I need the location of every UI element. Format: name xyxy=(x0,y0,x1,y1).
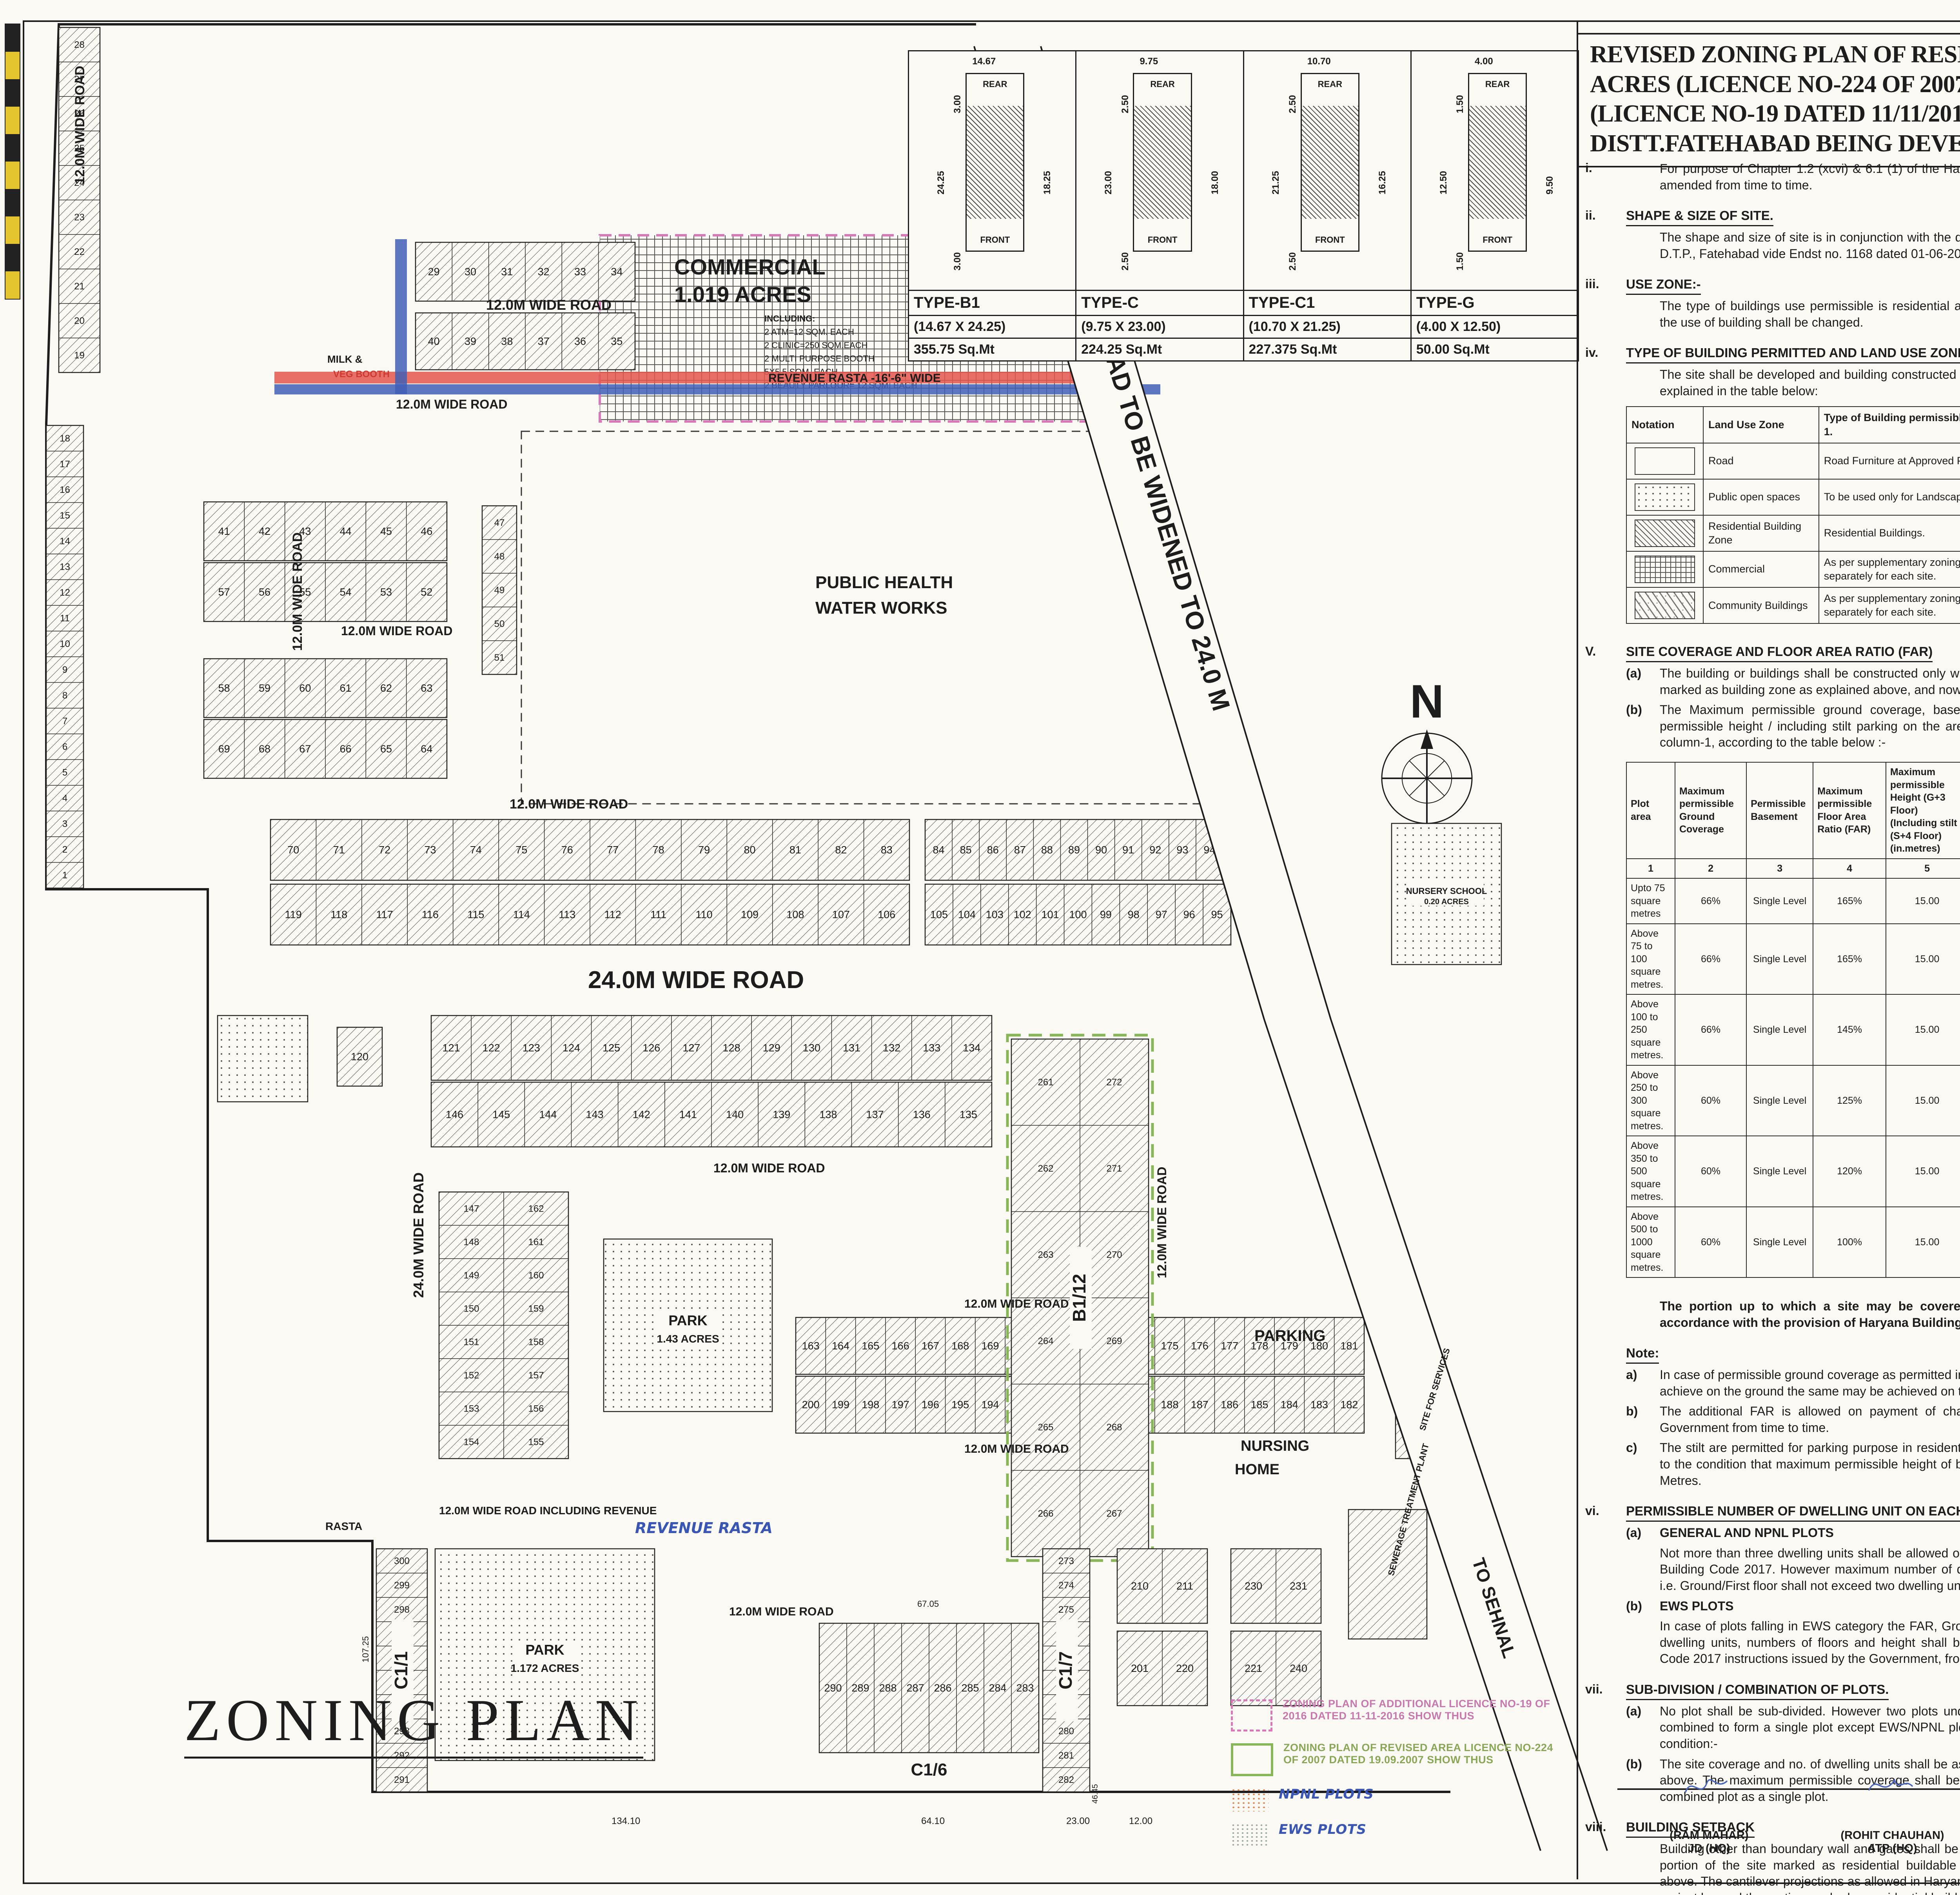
plot-number: 135 xyxy=(960,1109,977,1121)
plot-type-dims: (10.70 X 21.25) xyxy=(1244,315,1410,338)
plot-number: 50 xyxy=(494,619,505,629)
plot-number: 286 xyxy=(934,1682,951,1694)
section-paragraph: For purpose of Chapter 1.2 (xcvi) & 6.1 … xyxy=(1626,161,1960,193)
plot-number: 108 xyxy=(786,909,804,921)
commercial-including: 2 MULTI PURPOSE BOOTH xyxy=(764,354,875,363)
regulation-section: The portion up to which a site may be co… xyxy=(1585,1297,1960,1335)
compass-ray xyxy=(1427,778,1445,796)
plot-number: 186 xyxy=(1221,1399,1238,1411)
plot-number: 66 xyxy=(340,743,352,755)
plot-number: 184 xyxy=(1281,1399,1298,1411)
plot-number: 132 xyxy=(883,1042,900,1054)
plot-number: 57 xyxy=(218,586,230,598)
plot-number: 122 xyxy=(483,1042,500,1054)
plot-number: 127 xyxy=(682,1042,700,1054)
compass-ray xyxy=(1409,761,1427,778)
area-label: 0.20 ACRES xyxy=(1424,898,1469,906)
section-paragraph: (a)No plot shall be sub-divided. However… xyxy=(1626,1703,1960,1752)
map-label: MILK & xyxy=(327,353,363,365)
plot-type-name: TYPE-C1 xyxy=(1244,290,1410,315)
plot-number: 7 xyxy=(62,716,67,727)
section-paragraph: (b)EWS PLOTS xyxy=(1626,1598,1960,1615)
zoning-plan-sheet: COMMERCIAL1.019 ACRESINCLUDING:2 ATM=12 … xyxy=(0,0,1960,1895)
legend-item: ZONING PLAN OF REVISED AREA LICENCE NO-2… xyxy=(1231,1742,1568,1776)
plot-number: 89 xyxy=(1068,844,1080,856)
plot-number: 300 xyxy=(394,1556,410,1566)
plot-number: 111 xyxy=(650,909,666,921)
legend-text: ZONING PLAN OF REVISED AREA LICENCE NO-2… xyxy=(1283,1742,1568,1766)
plot-number: 220 xyxy=(1176,1662,1194,1674)
plot-number: 6 xyxy=(62,741,67,752)
section-number: V. xyxy=(1585,643,1626,1287)
paragraph-label: (b) xyxy=(1626,1598,1660,1615)
section-paragraph: The type of buildings use permissible is… xyxy=(1626,298,1960,331)
plot-number: 168 xyxy=(951,1340,969,1352)
block-label: B1/12 xyxy=(1069,1274,1089,1322)
pat-road-swatch xyxy=(1635,447,1695,475)
paragraph-text: EWS PLOTS xyxy=(1660,1598,1960,1615)
plot-number: 200 xyxy=(802,1399,820,1411)
paragraph-text: The site shall be developed and building… xyxy=(1660,367,1960,399)
rear-setback-label: REAR xyxy=(1302,79,1358,89)
plot-number: 131 xyxy=(843,1042,860,1054)
plot-number: 166 xyxy=(892,1340,909,1352)
plot-number: 115 xyxy=(467,909,484,921)
front-setback-label: FRONT xyxy=(1302,235,1358,245)
paragraph-label xyxy=(1626,1298,1660,1331)
plot-number: 263 xyxy=(1038,1250,1053,1260)
regulations-column-left: i.For purpose of Chapter 1.2 (xcvi) & 6.… xyxy=(1585,160,1960,1744)
section-number: iii. xyxy=(1585,276,1626,334)
paragraph-label xyxy=(1626,298,1660,331)
map-label: 24.0M WIDE ROAD xyxy=(588,967,804,994)
plot-number: 18 xyxy=(60,433,70,444)
plot-number: 81 xyxy=(789,844,801,856)
legend-text: ZONING PLAN OF ADDITIONAL LICENCE NO-19 … xyxy=(1283,1698,1568,1722)
plot-number: 110 xyxy=(696,909,713,921)
front-setback-label: FRONT xyxy=(967,235,1023,245)
section-number xyxy=(1585,1297,1626,1335)
plot-number: 281 xyxy=(1058,1750,1074,1761)
plot-number: 161 xyxy=(528,1237,544,1248)
section-paragraph: The shape and size of site is in conjunc… xyxy=(1626,229,1960,262)
plot-number: 289 xyxy=(851,1682,869,1694)
map-label: 67.05 xyxy=(917,1599,939,1609)
plot-number: 266 xyxy=(1038,1508,1053,1519)
plot-number: 165 xyxy=(862,1340,879,1352)
regulation-section: vi.PERMISSIBLE NUMBER OF DWELLING UNIT O… xyxy=(1585,1503,1960,1671)
map-label: 12.0M WIDE ROAD xyxy=(396,397,507,411)
map-label: PARKING xyxy=(1254,1327,1325,1344)
plot-number: 288 xyxy=(879,1682,897,1694)
map-legend: ZONING PLAN OF ADDITIONAL LICENCE NO-19 … xyxy=(1231,1698,1568,1857)
legend-item: NPNL PLOTS xyxy=(1231,1786,1568,1811)
plot-number: 2 xyxy=(62,845,67,855)
plot-number: 99 xyxy=(1100,909,1112,921)
plot-number: 134 xyxy=(963,1042,980,1054)
signatory-role: ATP (HQ) xyxy=(1801,1842,1960,1855)
plot-number: 17 xyxy=(60,459,70,469)
paragraph-text: The stilt are permitted for parking purp… xyxy=(1660,1440,1960,1489)
plot-number: 45 xyxy=(380,525,392,537)
plot-number: 106 xyxy=(878,909,895,921)
front-dim: 3.00 xyxy=(952,253,963,271)
plot-number: 91 xyxy=(1122,844,1134,856)
map-label: 12.0M WIDE ROAD xyxy=(964,1443,1069,1455)
plot-number: 177 xyxy=(1221,1340,1238,1352)
section-heading: PERMISSIBLE NUMBER OF DWELLING UNIT ON E… xyxy=(1626,1503,1960,1522)
plot-number: 71 xyxy=(333,844,345,856)
plot-number: 30 xyxy=(465,266,476,278)
plot-number: 87 xyxy=(1014,844,1026,856)
plot-type-dims: (4.00 X 12.50) xyxy=(1412,315,1578,338)
area-label: 1.43 ACRES xyxy=(657,1333,719,1345)
plot-number: 284 xyxy=(989,1682,1006,1694)
plot-number: 58 xyxy=(218,682,230,694)
plot-number: 48 xyxy=(494,551,505,562)
plot-number: 269 xyxy=(1106,1336,1122,1346)
plot-type-area: 224.25 Sq.Mt xyxy=(1076,338,1243,360)
section-number: ii. xyxy=(1585,207,1626,266)
plot-number: 41 xyxy=(218,525,230,537)
plot-number: 198 xyxy=(862,1399,879,1411)
plot-number: 63 xyxy=(421,682,432,694)
paragraph-text: GENERAL AND NPNL PLOTS xyxy=(1660,1525,1960,1541)
section-body: SITE COVERAGE AND FLOOR AREA RATIO (FAR)… xyxy=(1626,643,1960,1287)
plot-number: 199 xyxy=(832,1399,849,1411)
plot-number: 141 xyxy=(679,1109,697,1121)
commercial-including: INCLUDING: xyxy=(764,314,815,323)
paragraph-label xyxy=(1626,229,1660,262)
plot-number: 34 xyxy=(611,266,622,278)
regulation-section: Note:a)In case of permissible ground cov… xyxy=(1585,1345,1960,1493)
plot-number: 117 xyxy=(376,909,393,921)
plot-number: 96 xyxy=(1183,909,1195,921)
plot-number: 40 xyxy=(428,336,440,347)
plot-number: 280 xyxy=(1058,1726,1074,1737)
far-table-wrap: Plot areaMaximum permissible Ground Cove… xyxy=(1626,755,1960,1287)
section-heading: SHAPE & SIZE OF SITE. xyxy=(1626,207,1773,226)
plot-number: 104 xyxy=(958,909,976,921)
width-dim: 10.70 xyxy=(1307,56,1331,67)
front-setback-label: FRONT xyxy=(1134,235,1191,245)
section-paragraph: (b)The Maximum permissible ground covera… xyxy=(1626,702,1960,751)
plot-number: 70 xyxy=(287,844,299,856)
section-body: USE ZONE:-The type of buildings use perm… xyxy=(1626,276,1960,334)
plot-number: 51 xyxy=(494,652,505,663)
section-paragraph: The portion up to which a site may be co… xyxy=(1626,1298,1960,1331)
plot-number: 36 xyxy=(574,336,586,347)
section-paragraph: The site shall be developed and building… xyxy=(1626,367,1960,399)
plot-number: 119 xyxy=(285,909,302,921)
plot-number: 273 xyxy=(1058,1556,1074,1566)
section-paragraph: (a)The building or buildings shall be co… xyxy=(1626,665,1960,698)
rear-setback-label: REAR xyxy=(1469,79,1526,89)
plot-number: 11 xyxy=(60,613,70,624)
plot-number: 147 xyxy=(463,1204,479,1214)
map-label: 12.0M WIDE ROAD xyxy=(73,66,87,184)
plot-number: 221 xyxy=(1245,1662,1262,1674)
plot-number: 240 xyxy=(1290,1662,1307,1674)
plot-number: 116 xyxy=(422,909,439,921)
plot-number: 230 xyxy=(1245,1580,1262,1592)
plot-number: 143 xyxy=(586,1109,604,1121)
plot-number: 19 xyxy=(74,350,85,361)
plot-number: 138 xyxy=(819,1109,837,1121)
plot-number: 64 xyxy=(421,743,432,755)
plot-number: 100 xyxy=(1069,909,1087,921)
section-body: TYPE OF BUILDING PERMITTED AND LAND USE … xyxy=(1626,345,1960,633)
rear-dim: 2.50 xyxy=(1120,95,1131,113)
plot-number: 76 xyxy=(561,844,573,856)
plot-number: 21 xyxy=(74,281,85,292)
map-label: 12.0M WIDE ROAD xyxy=(341,624,452,638)
north-letter: N xyxy=(1410,675,1444,728)
plot-number: 92 xyxy=(1149,844,1161,856)
regulation-section: iv.TYPE OF BUILDING PERMITTED AND LAND U… xyxy=(1585,345,1960,633)
plot-number: 175 xyxy=(1161,1340,1178,1352)
front-dim: 2.50 xyxy=(1120,253,1131,271)
plot-number: 114 xyxy=(513,909,530,921)
plot-number: 130 xyxy=(803,1042,820,1054)
plot-number: 31 xyxy=(501,266,513,278)
depth-dim: 24.25 xyxy=(936,171,947,194)
map-label: VEG BOOTH xyxy=(333,369,390,380)
plot-number: 47 xyxy=(494,518,505,528)
legend-text: NPNL PLOTS xyxy=(1279,1786,1568,1802)
plot-number: 124 xyxy=(563,1042,580,1054)
plot-type-card: REARFRONT14.6724.2518.253.003.00TYPE-B1(… xyxy=(909,51,1076,360)
section-body: SHAPE & SIZE OF SITE.The shape and size … xyxy=(1626,207,1960,266)
signature-mark xyxy=(1684,1774,1735,1804)
map-label: 107.25 xyxy=(361,1636,370,1662)
colored-band xyxy=(274,384,1160,394)
commercial-area-label: 1.019 ACRES xyxy=(674,282,811,307)
plot-type-name: TYPE-G xyxy=(1412,290,1578,315)
section-body: PERMISSIBLE NUMBER OF DWELLING UNIT ON E… xyxy=(1626,1503,1960,1671)
plot-number: 65 xyxy=(380,743,392,755)
plot-type-area: 50.00 Sq.Mt xyxy=(1412,338,1578,360)
plot-number: 37 xyxy=(538,336,550,347)
regulation-section: ii.SHAPE & SIZE OF SITE.The shape and si… xyxy=(1585,207,1960,266)
plot-number: 10 xyxy=(60,639,70,649)
signature-mark xyxy=(1867,1774,1918,1804)
plot-number: 150 xyxy=(463,1304,479,1314)
plot-number: 16 xyxy=(60,485,70,495)
legend-swatch-pat-ews xyxy=(1231,1823,1269,1847)
plot-number: 144 xyxy=(539,1109,557,1121)
block-label: C1/7 xyxy=(1055,1651,1076,1689)
map-label: 46.45 xyxy=(1091,1784,1100,1804)
plot-number: 101 xyxy=(1042,909,1059,921)
plot-number: 287 xyxy=(906,1682,924,1694)
plot-number: 72 xyxy=(379,844,390,856)
plot-number: 291 xyxy=(394,1775,410,1785)
paragraph-text: Not more than three dwelling units shall… xyxy=(1660,1545,1960,1594)
plot-number: 120 xyxy=(351,1051,368,1063)
plot-number: 75 xyxy=(515,844,527,856)
section-paragraph: a)In case of permissible ground coverage… xyxy=(1626,1367,1960,1399)
paragraph-label: (a) xyxy=(1626,1525,1660,1541)
section-paragraph: b)The additional FAR is allowed on payme… xyxy=(1626,1403,1960,1436)
plot-number: 109 xyxy=(741,909,759,921)
plot-number: 272 xyxy=(1106,1077,1122,1088)
plot-type-card: REARFRONT10.7021.2516.252.502.50TYPE-C1(… xyxy=(1244,51,1412,360)
map-label: 134.10 xyxy=(612,1816,640,1826)
plot-number: 68 xyxy=(259,743,270,755)
plot-number: 8 xyxy=(62,690,67,701)
map-label: 12.0M WIDE ROAD xyxy=(290,532,305,651)
plot-number: 126 xyxy=(642,1042,660,1054)
plot-number: 59 xyxy=(259,682,270,694)
paragraph-label: (b) xyxy=(1626,702,1660,751)
legend-swatch-pat-npnl xyxy=(1231,1788,1269,1811)
plot-outline: REARFRONT xyxy=(1301,73,1359,252)
plot-number: 210 xyxy=(1131,1580,1149,1592)
plot-number: 102 xyxy=(1014,909,1031,921)
plot-number: 44 xyxy=(340,525,352,537)
plot-block xyxy=(218,1016,308,1102)
plot-number: 145 xyxy=(492,1109,510,1121)
plot-number: 5 xyxy=(62,767,67,778)
regulation-section: V.SITE COVERAGE AND FLOOR AREA RATIO (FA… xyxy=(1585,643,1960,1287)
map-label: REVENUE RASTA -16'-6" WIDE xyxy=(768,372,941,385)
front-dim: 2.50 xyxy=(1287,253,1298,271)
plot-number: 270 xyxy=(1106,1250,1122,1260)
plot-number: 62 xyxy=(380,682,392,694)
plot-number: 290 xyxy=(824,1682,842,1694)
plot-number: 29 xyxy=(428,266,440,278)
plot-number: 12 xyxy=(60,587,70,598)
plot-number: 84 xyxy=(933,844,945,856)
plot-number: 13 xyxy=(60,562,70,572)
block-label: C1/1 xyxy=(391,1651,411,1689)
map-label: 24.0M WIDE ROAD xyxy=(410,1172,426,1298)
buildable-dim: 18.25 xyxy=(1042,171,1053,194)
plot-number: 73 xyxy=(424,844,436,856)
section-paragraph: (a)GENERAL AND NPNL PLOTS xyxy=(1626,1525,1960,1541)
plot-number: 187 xyxy=(1191,1399,1209,1411)
paragraph-text: In case of permissible ground coverage a… xyxy=(1660,1367,1960,1399)
plot-number: 82 xyxy=(835,844,847,856)
map-label: RASTA xyxy=(325,1520,362,1532)
map-label: 12.0M WIDE ROAD xyxy=(964,1297,1069,1310)
map-label: NURSING xyxy=(1241,1438,1309,1454)
legend-item: ZONING PLAN OF ADDITIONAL LICENCE NO-19 … xyxy=(1231,1698,1568,1731)
plot-number: 182 xyxy=(1340,1399,1358,1411)
plot-outline: REARFRONT xyxy=(1468,73,1527,252)
rear-dim: 2.50 xyxy=(1287,95,1298,113)
section-heading: Note: xyxy=(1626,1345,1659,1364)
plot-number: 33 xyxy=(574,266,586,278)
plot-number: 80 xyxy=(744,844,755,856)
legend-swatch-green xyxy=(1231,1743,1273,1776)
plot-number: 95 xyxy=(1211,909,1223,921)
buildable-zone xyxy=(1302,106,1358,219)
plot-type-table: REARFRONT14.6724.2518.253.003.00TYPE-B1(… xyxy=(908,50,1579,362)
north-pointer xyxy=(1421,729,1433,749)
area-label: 1.172 ACRES xyxy=(511,1662,579,1674)
map-label: 12.00 xyxy=(1129,1816,1152,1826)
plot-number: 38 xyxy=(501,336,513,347)
plot-number: 118 xyxy=(330,909,347,921)
plot-number: 88 xyxy=(1041,844,1053,856)
plot-number: 153 xyxy=(463,1404,479,1414)
zoning-plan-title: ZONING PLAN xyxy=(184,1686,643,1759)
paragraph-label: c) xyxy=(1626,1440,1660,1489)
plot-number: 275 xyxy=(1058,1604,1074,1615)
plot-number: 154 xyxy=(463,1437,479,1448)
plot-number: 14 xyxy=(60,536,70,547)
section-number xyxy=(1585,1345,1626,1493)
plot-number: 23 xyxy=(74,212,85,223)
plot-number: 169 xyxy=(982,1340,999,1352)
paragraph-label xyxy=(1626,1545,1660,1594)
plot-number: 163 xyxy=(802,1340,820,1352)
plot-number: 140 xyxy=(726,1109,744,1121)
buildable-zone xyxy=(1469,106,1526,219)
depth-dim: 21.25 xyxy=(1270,171,1281,194)
plot-type-diagram: REARFRONT4.0012.509.501.501.50 xyxy=(1412,51,1578,290)
plot-type-diagram: REARFRONT10.7021.2516.252.502.50 xyxy=(1244,51,1410,290)
plot-number: 151 xyxy=(463,1337,479,1348)
paragraph-label: a) xyxy=(1626,1367,1660,1399)
paragraph-text: The Maximum permissible ground coverage,… xyxy=(1660,702,1960,751)
buildable-dim: 18.00 xyxy=(1210,171,1221,194)
plot-number: 128 xyxy=(723,1042,740,1054)
plot-number: 85 xyxy=(960,844,972,856)
map-label: 12.0M WIDE ROAD xyxy=(1155,1167,1169,1278)
plot-number: 113 xyxy=(559,909,575,921)
buildable-dim: 16.25 xyxy=(1377,171,1388,194)
plot-number: 188 xyxy=(1161,1399,1178,1411)
plot-number: 201 xyxy=(1131,1662,1149,1674)
section-paragraph: c)The stilt are permitted for parking pu… xyxy=(1626,1440,1960,1489)
paragraph-label: (a) xyxy=(1626,665,1660,698)
area-label: PARK xyxy=(525,1642,564,1658)
plot-number: 90 xyxy=(1095,844,1107,856)
plot-number: 107 xyxy=(832,909,850,921)
plot-number: 158 xyxy=(528,1337,544,1348)
plot-number: 74 xyxy=(470,844,482,856)
plot-number: 86 xyxy=(987,844,999,856)
paragraph-text: The additional FAR is allowed on payment… xyxy=(1660,1403,1960,1436)
plot-number: 197 xyxy=(892,1399,909,1411)
plot-number: 83 xyxy=(881,844,893,856)
signatory-role: JD (HQ) xyxy=(1617,1842,1801,1855)
title-block: REVISED ZONING PLAN OF RESIDENTIAL PLOTT… xyxy=(1578,33,1960,167)
plot-number: 35 xyxy=(611,336,622,347)
plot-number: 149 xyxy=(463,1270,479,1281)
section-paragraph: Not more than three dwelling units shall… xyxy=(1626,1545,1960,1594)
plot-number: 137 xyxy=(866,1109,884,1121)
legend-swatch-pink xyxy=(1231,1699,1272,1731)
plot-number: 61 xyxy=(340,682,352,694)
commercial-including: 2 CLINIC=250 SQM.EACH xyxy=(764,340,867,350)
plot-number: 148 xyxy=(463,1237,479,1248)
area-label: PARK xyxy=(668,1312,707,1328)
map-label: 12.0M WIDE ROAD xyxy=(713,1161,825,1175)
paragraph-text: The building or buildings shall be const… xyxy=(1660,665,1960,698)
regulations-panel: REVISED ZONING PLAN OF RESIDENTIAL PLOTT… xyxy=(1577,22,1960,1879)
plot-number: 4 xyxy=(62,793,67,804)
section-paragraph: In case of plots falling in EWS category… xyxy=(1626,1618,1960,1667)
plot-number: 105 xyxy=(930,909,948,921)
plot-number: 231 xyxy=(1290,1580,1307,1592)
area-label: NURSERY SCHOOL xyxy=(1406,886,1487,896)
plot-number: 211 xyxy=(1176,1580,1193,1592)
paragraph-label: b) xyxy=(1626,1403,1660,1436)
